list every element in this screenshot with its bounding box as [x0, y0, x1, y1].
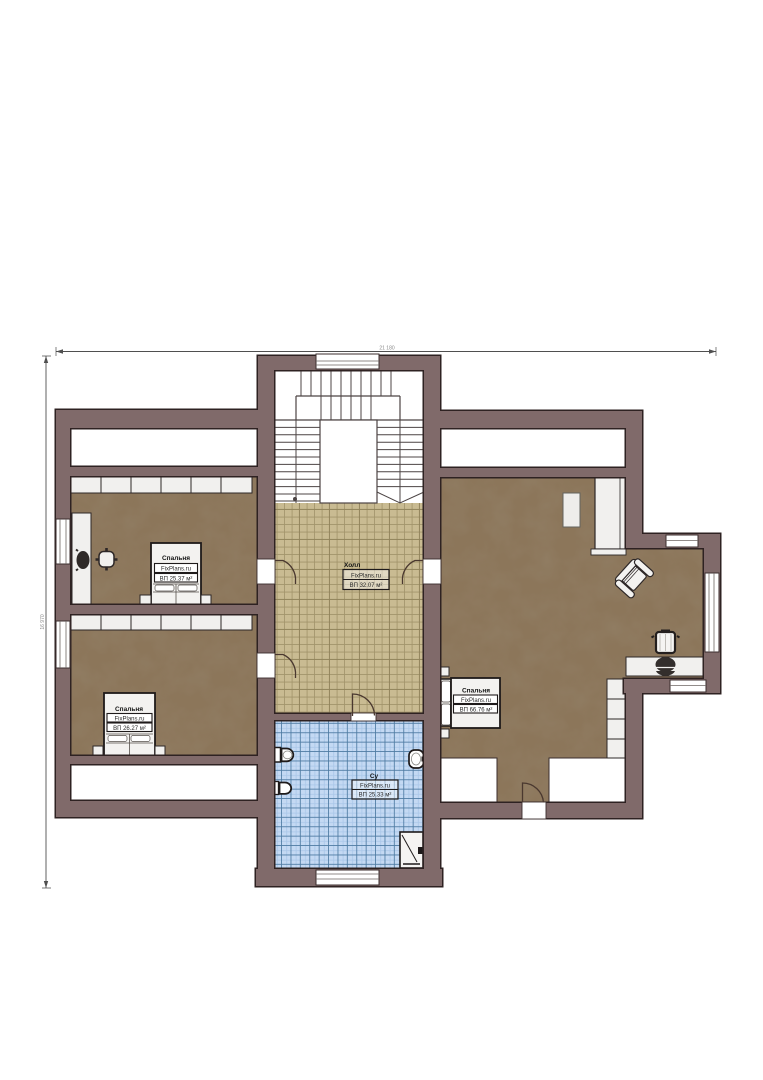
svg-text:FixPlans.ru: FixPlans.ru — [351, 574, 381, 580]
svg-text:21 180: 21 180 — [379, 346, 395, 352]
svg-text:FixPlans.ru: FixPlans.ru — [461, 698, 491, 704]
svg-text:ВП 66.76 м²: ВП 66.76 м² — [460, 708, 493, 714]
svg-text:FixPlans.ru: FixPlans.ru — [161, 567, 191, 573]
svg-text:16 970: 16 970 — [40, 614, 46, 630]
svg-text:ВП 32.07 м²: ВП 32.07 м² — [350, 583, 383, 589]
svg-text:Спальня: Спальня — [115, 706, 143, 713]
svg-text:Спальня: Спальня — [462, 688, 490, 695]
svg-text:ВП 26.27 м²: ВП 26.27 м² — [113, 726, 146, 732]
svg-text:Спальня: Спальня — [162, 555, 190, 562]
svg-text:ВП 25.33 м²: ВП 25.33 м² — [359, 793, 392, 799]
svg-text:ВП 25.37 м²: ВП 25.37 м² — [160, 577, 193, 583]
svg-text:Су: Су — [370, 773, 379, 780]
svg-text:Холл: Холл — [344, 562, 360, 569]
svg-text:FixPlans.ru: FixPlans.ru — [360, 784, 390, 790]
svg-text:FixPlans.ru: FixPlans.ru — [114, 717, 144, 723]
